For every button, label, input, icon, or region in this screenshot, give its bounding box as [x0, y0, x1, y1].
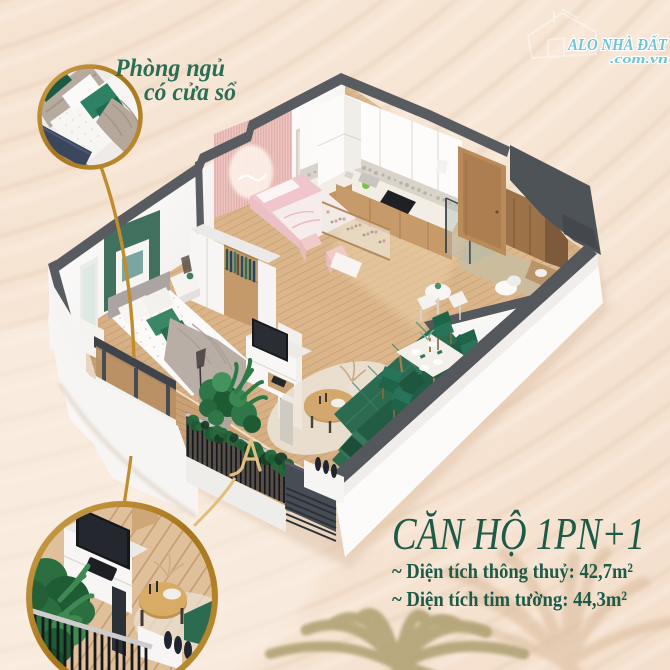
svg-text:~ Diện tích thông thuỷ: 42,7m²: ~ Diện tích thông thuỷ: 42,7m² [392, 559, 633, 583]
svg-text:CĂN HỘ 1PN+1: CĂN HỘ 1PN+1 [392, 508, 645, 559]
svg-text:.com.vn: .com.vn [610, 51, 668, 66]
svg-text:~ Diện tích tim tường: 44,3m²: ~ Diện tích tim tường: 44,3m² [392, 587, 627, 611]
svg-text:Phòng ngủ: Phòng ngủ [114, 55, 225, 82]
svg-text:có cửa sổ: có cửa sổ [144, 79, 237, 106]
